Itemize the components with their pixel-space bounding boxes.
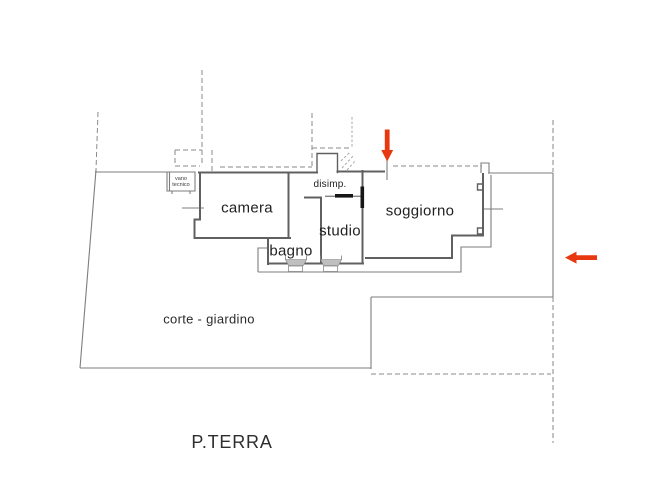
top-protrusion [317,154,338,173]
pillar [481,163,489,173]
vano-tecnico-line2: tecnico [172,182,189,188]
room-label-vano-tecnico: vano tecnico [172,176,189,188]
window-sill [286,260,307,266]
bagno-outer-step [258,248,268,272]
dashed-box-above-vano [175,150,202,166]
floorplan-drawing [0,0,650,497]
entrance-arrows [381,130,597,264]
window-sill [321,260,342,266]
room-label-disimpegno: disimp. [313,180,346,190]
door-leaf-vertical [361,187,365,209]
floor-title: P.TERRA [191,433,272,451]
stair-hatch-dashed [341,117,356,170]
area-label-corte-giardino: corte - giardino [163,313,255,326]
left-boundary-dashed [96,112,98,170]
entrance-arrow-down-icon [381,130,393,162]
room-label-camera: camera [221,201,273,216]
room-label-bagno: bagno [269,244,312,259]
window-step [324,266,338,272]
room-label-soggiorno: soggiorno [386,204,455,219]
window-step [289,266,303,272]
room-label-studio: studio [319,224,361,239]
entrance-arrow-left-icon [565,252,597,264]
door-leaf-horizontal [335,194,353,198]
boundary-dashed-lines [96,70,553,443]
floorplan-canvas: camera soggiorno studio bagno disimp. va… [0,0,650,497]
left-boundary-solid [80,170,96,368]
